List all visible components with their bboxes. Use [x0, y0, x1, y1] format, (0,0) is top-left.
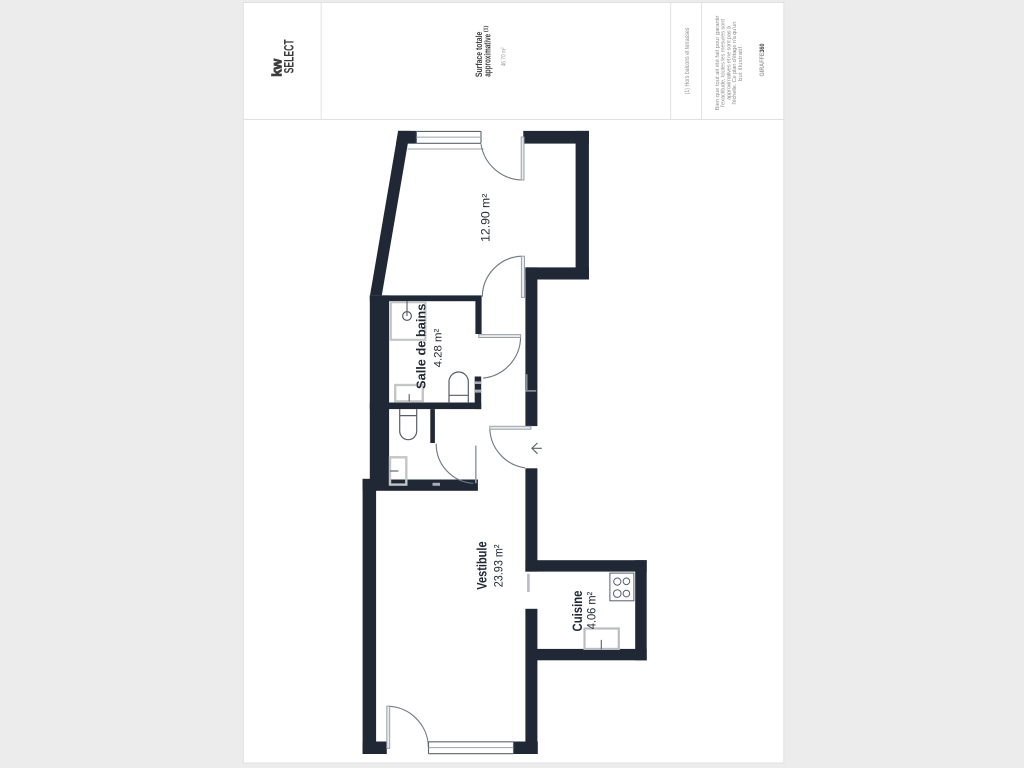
svg-text:GIRAFFE360: GIRAFFE360 [759, 43, 766, 76]
svg-text:46.70 m²: 46.70 m² [501, 47, 508, 67]
svg-text:SELECT: SELECT [281, 39, 297, 73]
svg-text:4.06 m²: 4.06 m² [585, 592, 599, 629]
svg-text:12.90 m²: 12.90 m² [480, 194, 492, 242]
svg-text:Cuisine: Cuisine [569, 590, 585, 631]
svg-text:4.28 m²: 4.28 m² [433, 328, 445, 367]
svg-text:(1) Hors balcons et terrasses: (1) Hors balcons et terrasses [684, 28, 691, 95]
svg-text:approximative: approximative [483, 34, 493, 77]
svg-text:(1): (1) [484, 25, 490, 32]
svg-text:but illustratif.: but illustratif. [738, 45, 744, 81]
svg-text:Salle de bains: Salle de bains [414, 304, 429, 389]
svg-text:23.93 m²: 23.93 m² [491, 545, 505, 588]
svg-text:Vestibule: Vestibule [475, 541, 490, 590]
